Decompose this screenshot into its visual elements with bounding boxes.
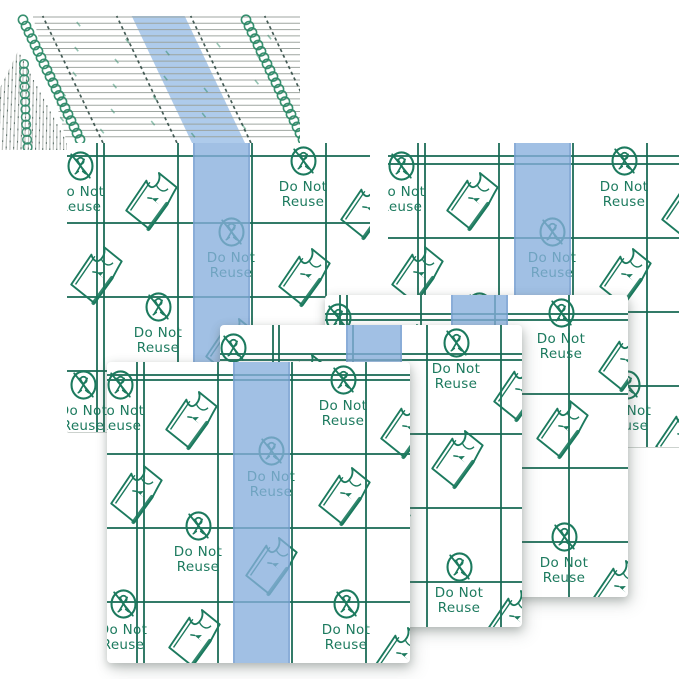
do-not-reuse-label-line2: Reuse [266, 195, 340, 210]
peel-corner-icon [275, 252, 341, 300]
peel-corner-icon [371, 631, 410, 663]
product-photo-film-dressing-sheets: Do NotReuseDo NotReuseDo NotReuseDo NotR… [0, 0, 679, 679]
no-scissors-icon [108, 587, 139, 621]
do-not-reuse-label-line2: Reuse [161, 560, 235, 575]
do-not-reuse-motif: Do NotReuse [67, 149, 117, 214]
do-not-reuse-label: Do NotReuse [161, 545, 235, 574]
do-not-reuse-motif: Do NotReuse [161, 509, 235, 574]
do-not-reuse-label-line1: Do Not [107, 404, 157, 419]
do-not-reuse-motif: Do NotReuse [121, 290, 195, 355]
do-not-reuse-label-line1: Do Not [587, 180, 661, 195]
no-scissors-icon [331, 587, 362, 621]
do-not-reuse-motif: Do NotReuse [107, 368, 157, 433]
peel-corner-icon [533, 404, 599, 452]
do-not-reuse-label-line2: Reuse [388, 200, 438, 215]
peel-corner-icon [595, 337, 628, 385]
no-scissors-icon [328, 363, 359, 397]
peel-corner-icon [377, 404, 410, 452]
no-scissors-icon [546, 296, 577, 330]
do-not-reuse-motif: Do NotReuse [306, 363, 380, 428]
no-scissors-icon [609, 144, 640, 178]
do-not-reuse-label-line2: Reuse [306, 414, 380, 429]
peel-corner-icon [67, 250, 133, 298]
sheet-stack-left [0, 0, 300, 150]
do-not-reuse-label-line1: Do Not [121, 326, 195, 341]
do-not-reuse-motif: Do NotReuse [388, 149, 438, 214]
no-scissors-icon [444, 550, 475, 584]
do-not-reuse-label-line1: Do Not [161, 545, 235, 560]
do-not-reuse-label: Do NotReuse [67, 185, 117, 214]
do-not-reuse-label: Do NotReuse [107, 404, 157, 433]
peel-corner-icon [490, 367, 522, 415]
do-not-reuse-label-line2: Reuse [107, 419, 157, 434]
peel-corner-icon [315, 471, 381, 519]
peel-corner-icon [162, 395, 228, 443]
do-not-reuse-motif: Do NotReuse [587, 144, 661, 209]
do-not-reuse-motif: Do NotReuse [266, 144, 340, 209]
do-not-reuse-label-line2: Reuse [121, 341, 195, 356]
do-not-reuse-label-line1: Do Not [107, 623, 160, 638]
no-scissors-icon [441, 326, 472, 360]
no-scissors-icon [68, 368, 99, 402]
do-not-reuse-label-line2: Reuse [419, 377, 493, 392]
loose-sheet-front-left: Do NotReuseDo NotReuseDo NotReuseDo NotR… [107, 362, 410, 663]
no-scissors-icon [143, 290, 174, 324]
peel-corner-icon [165, 613, 231, 661]
do-not-reuse-label: Do NotReuse [121, 326, 195, 355]
do-not-reuse-label: Do NotReuse [587, 180, 661, 209]
sheet-stack-right [0, 0, 300, 150]
no-scissors-icon [183, 509, 214, 543]
peel-corner-icon [337, 185, 370, 233]
peel-corner-icon [388, 250, 454, 298]
peel-corner-icon [428, 434, 494, 482]
peel-corner-icon [122, 176, 188, 224]
no-scissors-icon [549, 520, 580, 554]
no-scissors-icon [220, 331, 249, 365]
do-not-reuse-motif: Do NotReuse [107, 587, 160, 652]
no-scissors-icon [107, 368, 136, 402]
do-not-reuse-label-line1: Do Not [524, 332, 598, 347]
do-not-reuse-label-line1: Do Not [266, 180, 340, 195]
peel-corner-icon [658, 185, 679, 233]
peel-corner-icon [589, 564, 628, 597]
peel-corner-icon [484, 594, 522, 627]
blue-center-stripe [233, 362, 290, 663]
peel-corner-icon [596, 252, 662, 300]
do-not-reuse-label: Do NotReuse [266, 180, 340, 209]
no-scissors-icon [67, 149, 96, 183]
do-not-reuse-label-line1: Do Not [67, 185, 117, 200]
peel-corner-icon [107, 469, 173, 517]
do-not-reuse-label: Do NotReuse [419, 362, 493, 391]
do-not-reuse-label-line2: Reuse [67, 200, 117, 215]
do-not-reuse-label: Do NotReuse [306, 399, 380, 428]
peel-corner-icon [652, 412, 679, 448]
do-not-reuse-label-line2: Reuse [587, 195, 661, 210]
no-scissors-icon [388, 149, 417, 183]
do-not-reuse-label-line1: Do Not [419, 362, 493, 377]
do-not-reuse-label-line2: Reuse [524, 347, 598, 362]
no-scissors-icon [288, 144, 319, 178]
do-not-reuse-label: Do NotReuse [107, 623, 160, 652]
peel-corner-icon [443, 176, 509, 224]
do-not-reuse-label-line1: Do Not [306, 399, 380, 414]
do-not-reuse-label: Do NotReuse [388, 185, 438, 214]
do-not-reuse-label-line1: Do Not [388, 185, 438, 200]
do-not-reuse-label-line2: Reuse [107, 638, 160, 653]
do-not-reuse-label: Do NotReuse [524, 332, 598, 361]
do-not-reuse-motif: Do NotReuse [524, 296, 598, 361]
do-not-reuse-motif: Do NotReuse [419, 326, 493, 391]
